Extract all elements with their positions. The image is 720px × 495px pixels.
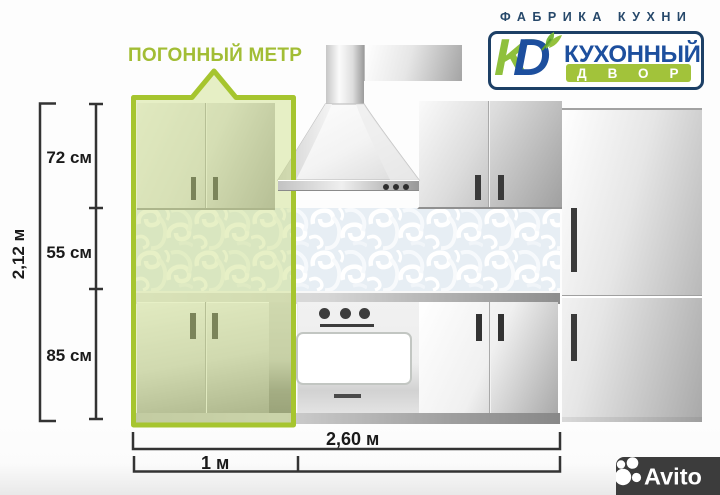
svg-text:Avito: Avito bbox=[644, 464, 702, 490]
